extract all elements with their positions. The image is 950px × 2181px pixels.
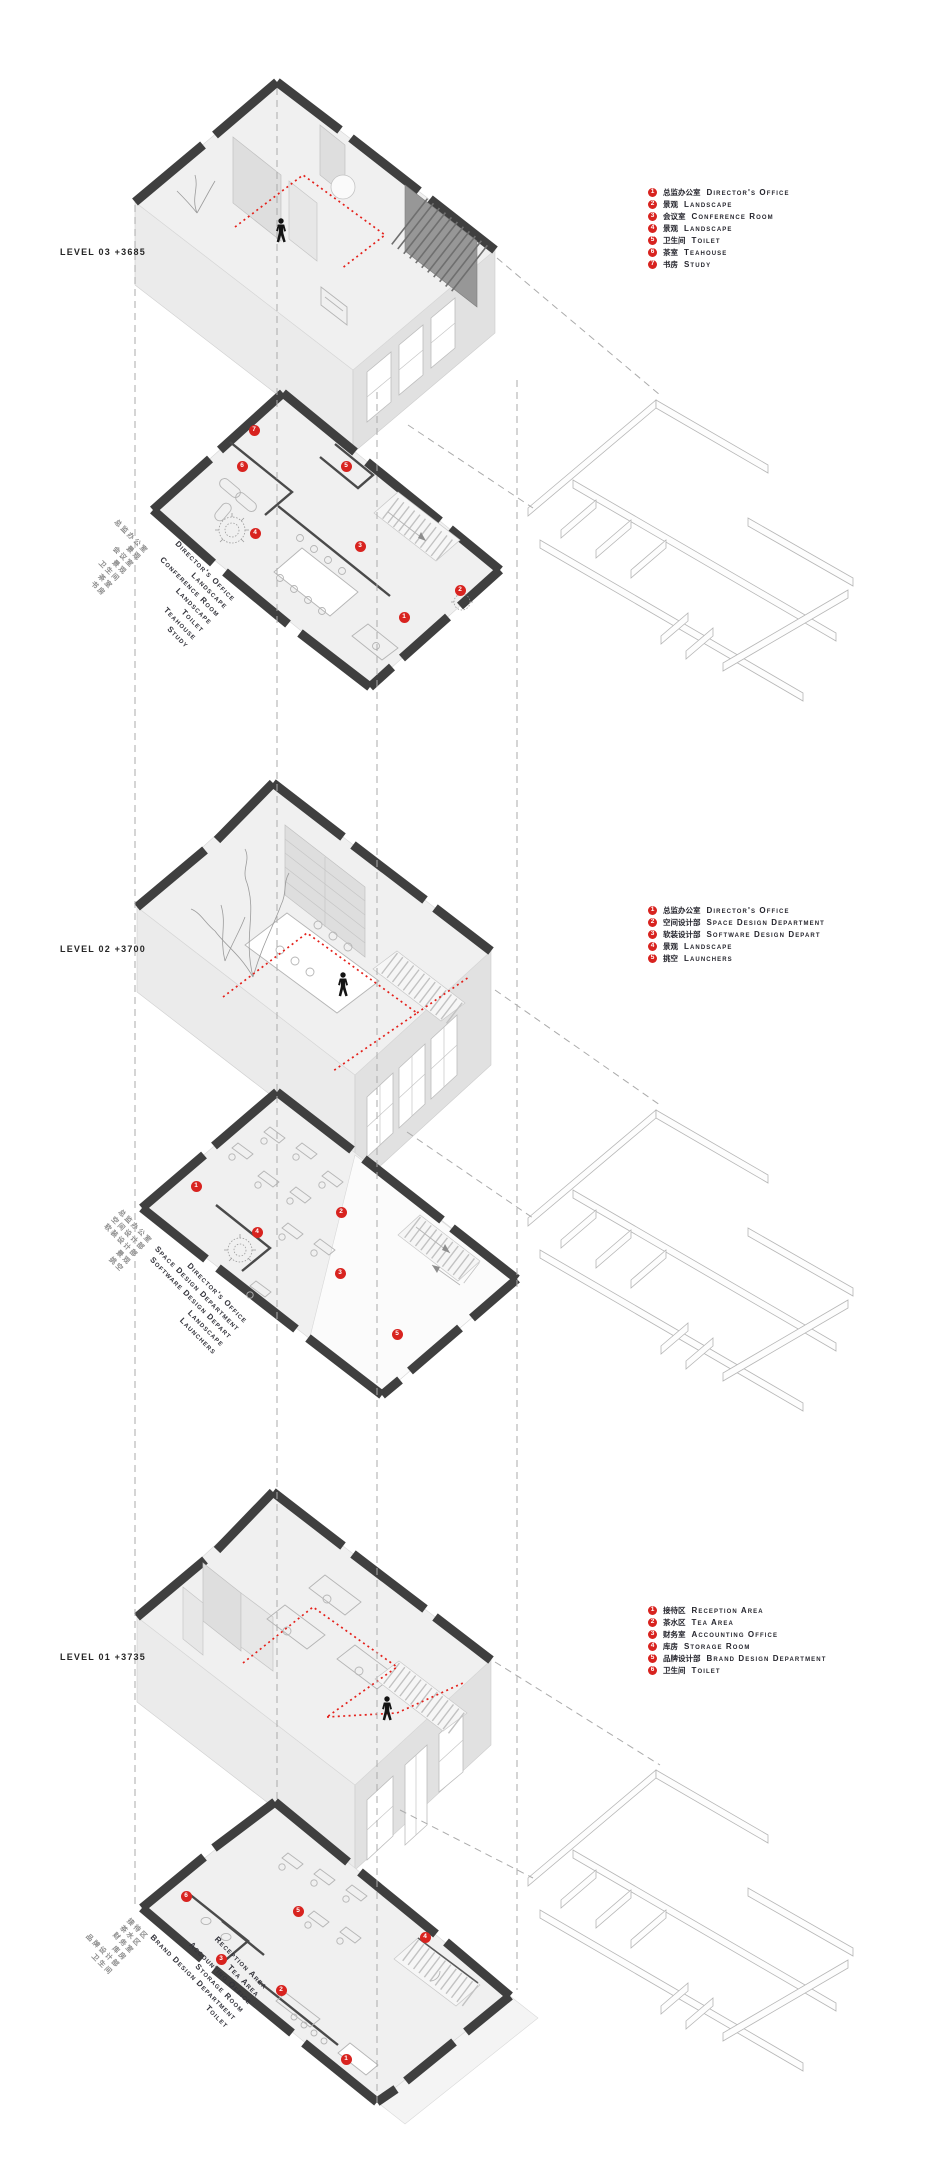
level-label-02: LEVEL 02 +3700 (60, 944, 146, 954)
exploded-axonometric-diagram: LEVEL 03 +3685 LEVEL 02 +3700 LEVEL 01 +… (0, 0, 950, 2181)
legend-label-en: Space Design Department (707, 918, 825, 927)
legend-label-en: Tea Area (692, 1618, 734, 1627)
legend-label-en: Brand Design Department (707, 1654, 827, 1663)
legend-number-badge: 6 (648, 248, 657, 257)
legend-label-en: Landscape (684, 200, 732, 209)
legend-number-badge: 4 (648, 1642, 657, 1651)
projection-line-diagonal (497, 258, 660, 395)
legend-level-02: 1 总监办公室 Director's Office 2 空间设计部 Space … (648, 906, 825, 963)
room-number-marker: 1 (191, 1181, 202, 1192)
legend-number-badge: 3 (648, 212, 657, 221)
room-number-marker: 3 (216, 1954, 227, 1965)
legend-label-zh: 接待区 (663, 1605, 686, 1616)
legend-level-03: 1 总监办公室 Director's Office 2 景观 Landscape… (648, 188, 790, 269)
legend-label-zh: 书房 (663, 259, 678, 270)
level-label-03: LEVEL 03 +3685 (60, 247, 146, 257)
legend-item: 4 景观 Landscape (648, 224, 790, 233)
legend-item: 1 总监办公室 Director's Office (648, 188, 790, 197)
legend-item: 5 卫生间 Toilet (648, 236, 790, 245)
room-number-marker: 2 (455, 585, 466, 596)
room-number-marker: 5 (293, 1906, 304, 1917)
legend-label-zh: 库房 (663, 1641, 678, 1652)
room-number-marker: 4 (252, 1227, 263, 1238)
legend-number-badge: 1 (648, 1606, 657, 1615)
legend-label-zh: 软装设计部 (663, 929, 701, 940)
plan-markers-level-01: 123456 (118, 1793, 538, 2138)
legend-item: 4 景观 Landscape (648, 942, 825, 951)
room-number-marker: 3 (335, 1268, 346, 1279)
legend-label-en: Landscape (684, 942, 732, 951)
legend-item: 1 接待区 Reception Area (648, 1606, 826, 1615)
legend-label-zh: 空间设计部 (663, 917, 701, 928)
legend-label-zh: 景观 (663, 223, 678, 234)
legend-label-en: Reception Area (692, 1606, 764, 1615)
legend-label-zh: 景观 (663, 941, 678, 952)
legend-label-en: Launchers (684, 954, 733, 963)
legend-item: 6 卫生间 Toilet (648, 1666, 826, 1675)
legend-number-badge: 5 (648, 1654, 657, 1663)
legend-item: 2 空间设计部 Space Design Department (648, 918, 825, 927)
legend-number-badge: 4 (648, 942, 657, 951)
legend-item: 7 书房 Study (648, 260, 790, 269)
room-number-marker: 1 (341, 2054, 352, 2065)
room-number-marker: 5 (392, 1329, 403, 1340)
legend-label-zh: 茶室 (663, 247, 678, 258)
legend-number-badge: 5 (648, 954, 657, 963)
legend-item: 2 茶水区 Tea Area (648, 1618, 826, 1627)
legend-label-zh: 总监办公室 (663, 905, 701, 916)
legend-label-zh: 会议室 (663, 211, 686, 222)
legend-item: 4 库房 Storage Room (648, 1642, 826, 1651)
legend-item: 5 挑空 Launchers (648, 954, 825, 963)
legend-label-zh: 财务室 (663, 1629, 686, 1640)
plan-markers-level-03: 1234567 (130, 380, 520, 710)
legend-label-en: Landscape (684, 224, 732, 233)
legend-number-badge: 5 (648, 236, 657, 245)
legend-label-zh: 挑空 (663, 953, 678, 964)
legend-number-badge: 7 (648, 260, 657, 269)
room-number-marker: 2 (336, 1207, 347, 1218)
legend-label-zh: 总监办公室 (663, 187, 701, 198)
room-number-marker: 6 (237, 461, 248, 472)
legend-number-badge: 2 (648, 918, 657, 927)
plan-markers-level-02: 12345 (120, 1085, 530, 1415)
legend-number-badge: 1 (648, 188, 657, 197)
legend-item: 3 软装设计部 Software Design Depart (648, 930, 825, 939)
legend-label-zh: 卫生间 (663, 235, 686, 246)
legend-number-badge: 2 (648, 200, 657, 209)
legend-number-badge: 3 (648, 930, 657, 939)
legend-label-en: Director's Office (707, 906, 790, 915)
legend-label-en: Study (684, 260, 711, 269)
room-number-marker: 3 (355, 541, 366, 552)
room-number-marker: 2 (276, 1985, 287, 1996)
projection-line-diagonal (495, 1662, 660, 1765)
legend-label-en: Teahouse (684, 248, 727, 257)
legend-item: 2 景观 Landscape (648, 200, 790, 209)
legend-label-zh: 品牌设计部 (663, 1653, 701, 1664)
room-number-marker: 1 (399, 612, 410, 623)
legend-number-badge: 2 (648, 1618, 657, 1627)
legend-item: 6 茶室 Teahouse (648, 248, 790, 257)
legend-item: 3 会议室 Conference Room (648, 212, 790, 221)
legend-label-zh: 卫生间 (663, 1665, 686, 1676)
legend-item: 3 财务室 Accounting Office (648, 1630, 826, 1639)
legend-number-badge: 3 (648, 1630, 657, 1639)
legend-item: 5 品牌设计部 Brand Design Department (648, 1654, 826, 1663)
legend-label-en: Toilet (692, 1666, 721, 1675)
room-number-marker: 7 (249, 425, 260, 436)
room-number-marker: 4 (420, 1932, 431, 1943)
legend-level-01: 1 接待区 Reception Area 2 茶水区 Tea Area 3 财务… (648, 1606, 826, 1675)
legend-label-zh: 茶水区 (663, 1617, 686, 1628)
legend-label-zh: 景观 (663, 199, 678, 210)
legend-label-en: Accounting Office (692, 1630, 779, 1639)
legend-label-en: Toilet (692, 236, 721, 245)
legend-item: 1 总监办公室 Director's Office (648, 906, 825, 915)
room-number-marker: 4 (250, 528, 261, 539)
legend-label-en: Software Design Depart (707, 930, 821, 939)
room-number-marker: 6 (181, 1891, 192, 1902)
legend-number-badge: 6 (648, 1666, 657, 1675)
level-label-01: LEVEL 01 +3735 (60, 1652, 146, 1662)
legend-number-badge: 4 (648, 224, 657, 233)
legend-label-en: Storage Room (684, 1642, 750, 1651)
legend-label-en: Director's Office (707, 188, 790, 197)
legend-label-en: Conference Room (692, 212, 774, 221)
legend-number-badge: 1 (648, 906, 657, 915)
room-number-marker: 5 (341, 461, 352, 472)
